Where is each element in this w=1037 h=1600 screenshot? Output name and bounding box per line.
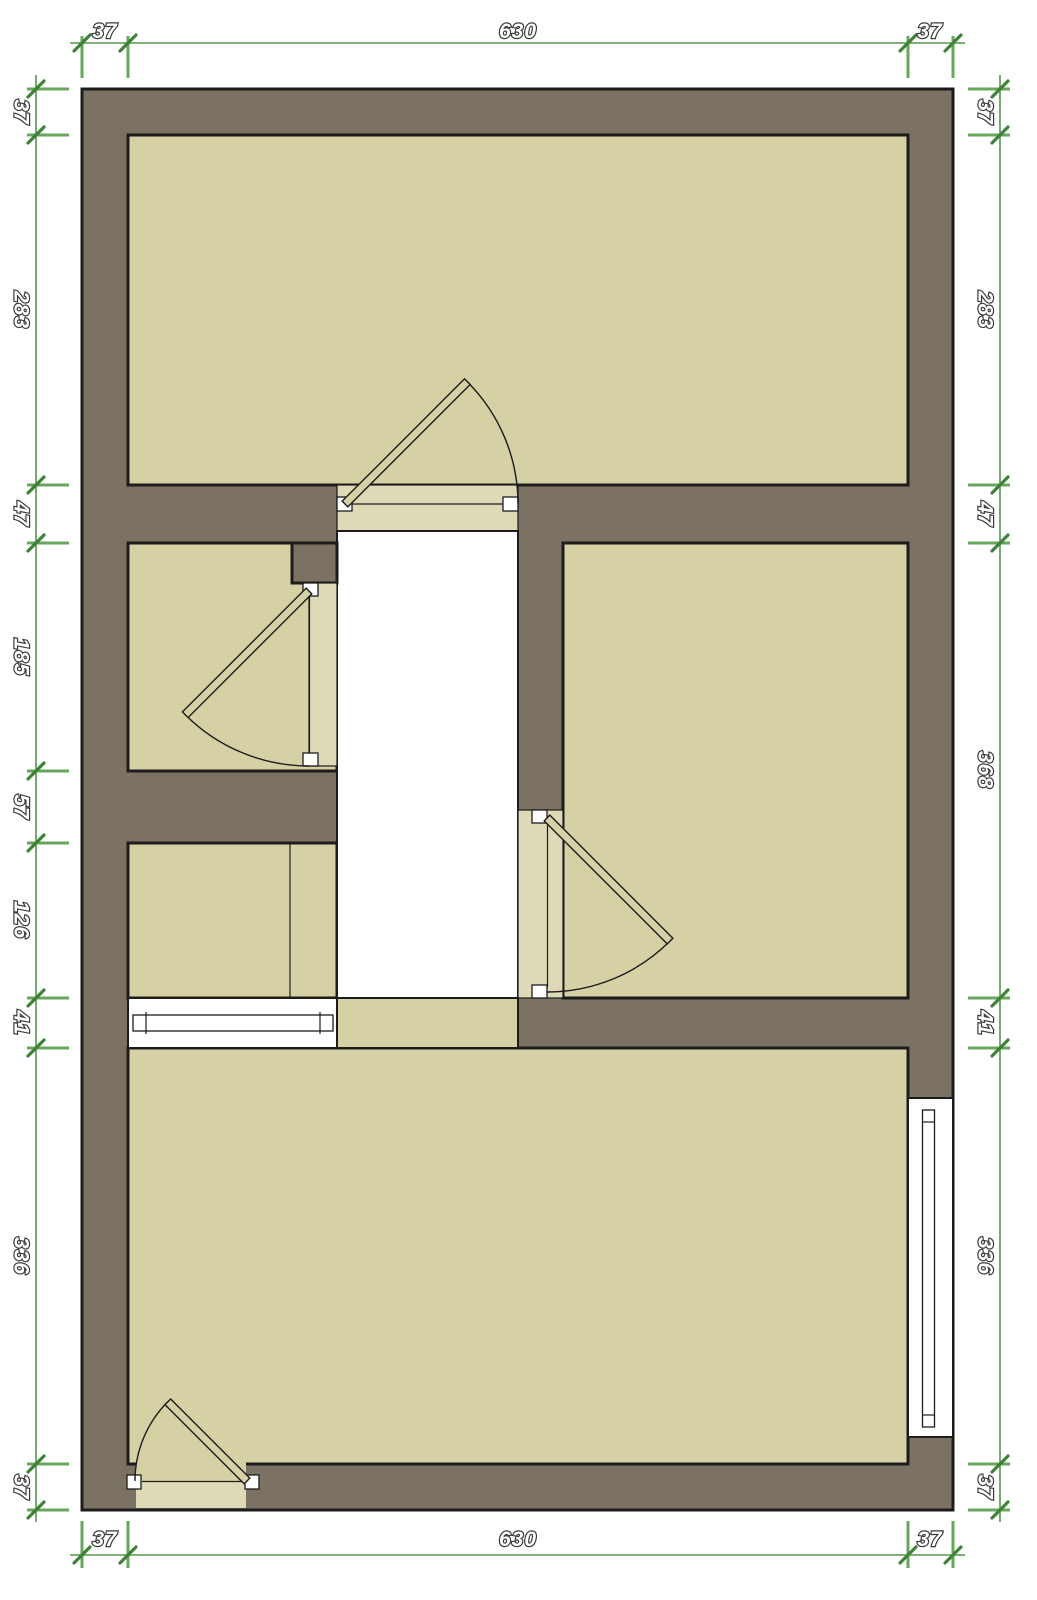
hall-to-bottom-passage [337, 998, 518, 1048]
dim-label-top-1: 630 [499, 20, 537, 43]
hallway [337, 531, 518, 998]
building [82, 89, 953, 1510]
room-bottom [128, 1048, 908, 1464]
dim-label-left-6: 41 [10, 1009, 33, 1035]
dim-label-right-3: 368 [974, 751, 997, 789]
dim-label-left-7: 336 [10, 1237, 33, 1275]
dim-label-right-4: 41 [974, 1009, 997, 1035]
dim-label-left-0: 37 [10, 99, 33, 125]
room-right-middle [563, 543, 908, 998]
dimension-right: 37 283 47 368 41 336 37 [968, 75, 1010, 1522]
dim-label-left-1: 283 [10, 290, 33, 329]
right-door-sill [518, 810, 563, 998]
dim-label-right-1: 283 [974, 290, 997, 329]
dim-label-right-6: 37 [974, 1474, 997, 1500]
door-jamb-bottom [303, 753, 318, 766]
door-jamb-bottom [532, 985, 547, 998]
entry-opening-sill [136, 1481, 246, 1508]
dim-label-right-5: 336 [974, 1237, 997, 1275]
dim-label-left-4: 57 [10, 794, 33, 820]
interior-window-frame [133, 1015, 333, 1031]
dim-label-left-2: 47 [10, 500, 33, 527]
dim-label-top-0: 37 [92, 20, 118, 43]
dim-label-bottom-2: 37 [917, 1528, 943, 1551]
dim-label-left-5: 126 [10, 901, 33, 939]
floor-plan-drawing: 37 630 37 37 630 37 [0, 0, 1037, 1600]
dimension-top: 37 630 37 [70, 20, 965, 78]
door-jamb-left [127, 1475, 141, 1489]
room-top [128, 135, 908, 485]
dim-label-right-2: 47 [974, 500, 997, 527]
dimension-bottom: 37 630 37 [70, 1521, 965, 1568]
left-door-sill [309, 583, 337, 766]
interior-window [133, 1012, 333, 1034]
right-wall-window [908, 1098, 953, 1437]
wall-stub-left-room [292, 543, 337, 583]
window-glazing [923, 1110, 935, 1427]
dim-label-top-2: 37 [917, 20, 943, 43]
dim-label-left-8: 37 [10, 1474, 33, 1500]
dim-label-bottom-0: 37 [92, 1528, 118, 1551]
dim-label-left-3: 185 [10, 638, 33, 676]
room-left-lower [128, 843, 337, 998]
dimension-left: 37 283 47 185 57 126 41 336 37 [10, 75, 70, 1522]
door-jamb-right [503, 497, 518, 511]
floor-plan-page: 37 630 37 37 630 37 [0, 0, 1037, 1600]
top-door-sill [337, 485, 518, 531]
dim-label-right-0: 37 [974, 99, 997, 125]
dim-label-bottom-1: 630 [499, 1528, 537, 1551]
